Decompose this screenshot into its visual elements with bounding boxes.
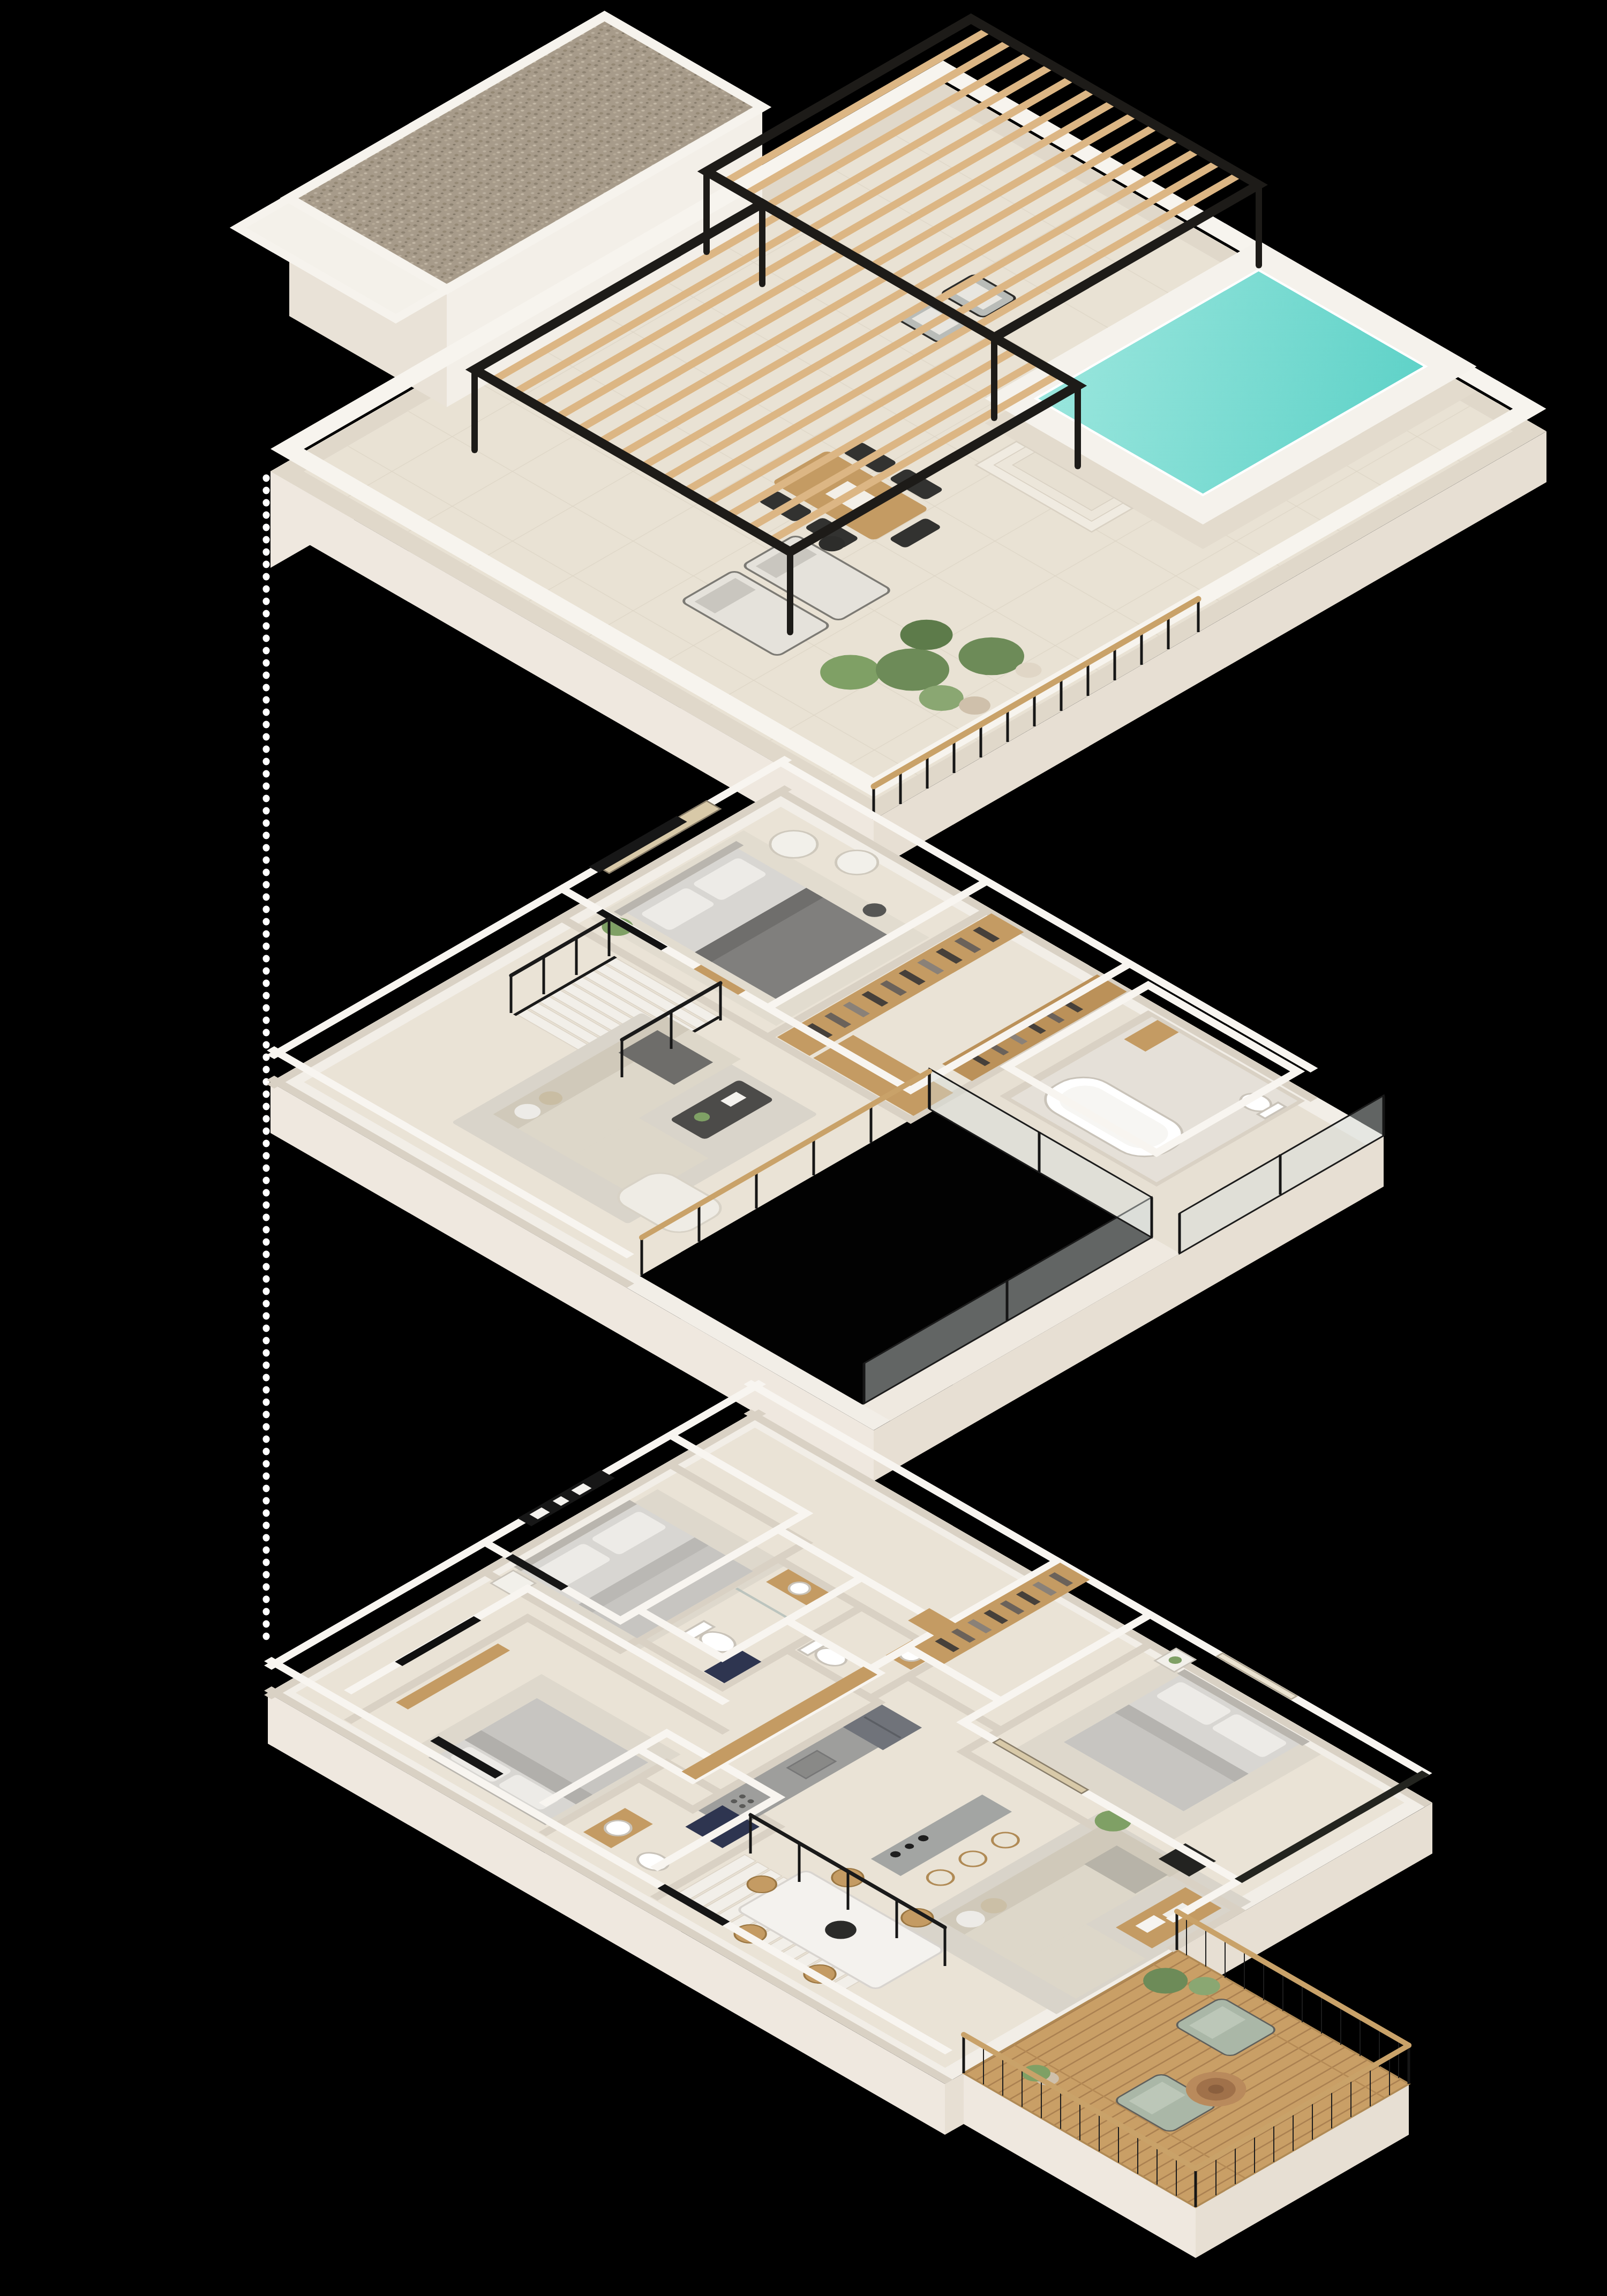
render-canvas	[0, 0, 1607, 2296]
floor-rooftop	[71, 0, 1588, 871]
upper-plan	[243, 757, 1409, 1430]
floor-upper	[243, 757, 1409, 1481]
isometric-plan-svg	[0, 0, 1607, 2296]
floor-ground	[242, 1382, 1607, 2258]
ground-fascia-notch	[945, 2073, 964, 2135]
